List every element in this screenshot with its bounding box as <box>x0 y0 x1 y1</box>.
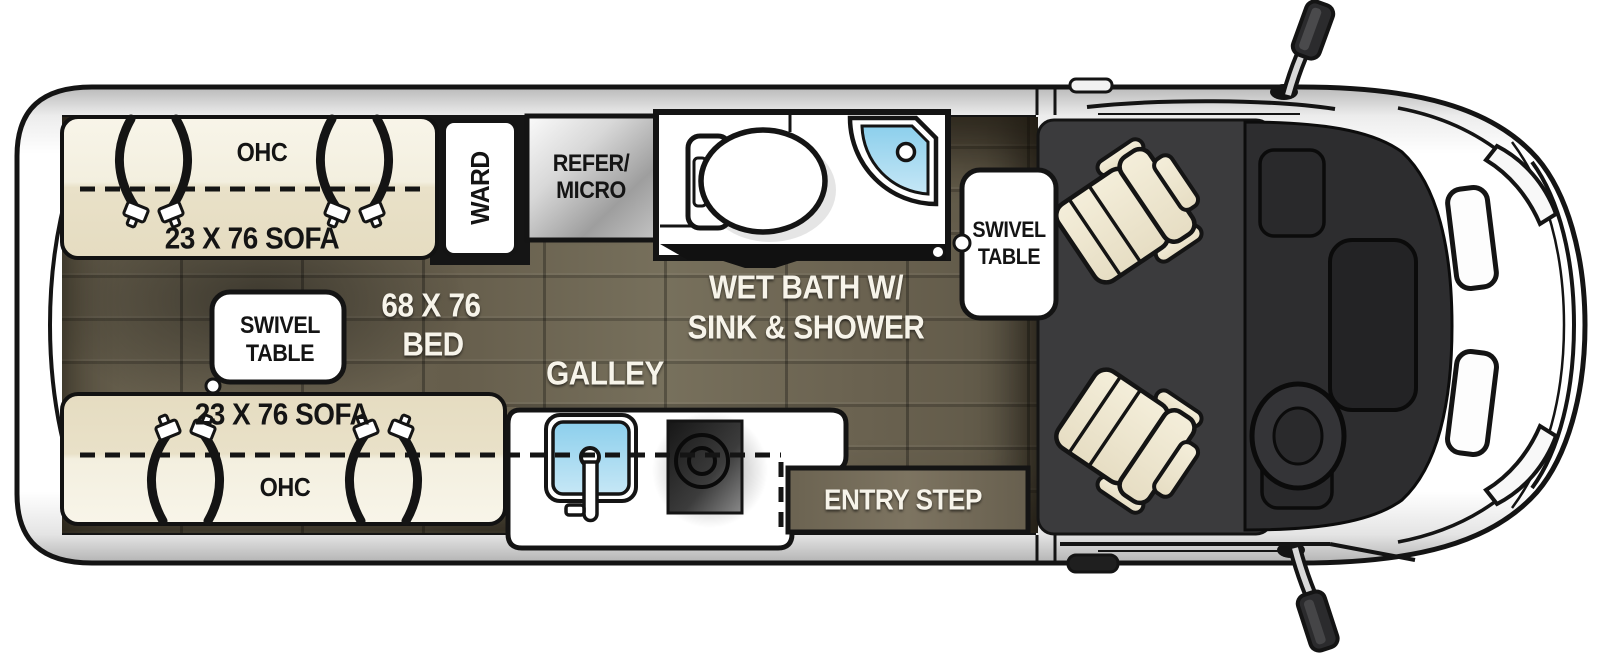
label-wet-bath-line1: WET BATH W/ <box>709 271 903 304</box>
label-bed-line1: 68 X 76 <box>381 289 480 322</box>
label-ohc-bottom: OHC <box>260 474 311 500</box>
label-entry-step: ENTRY STEP <box>824 487 982 516</box>
label-swivel-front-line1: SWIVEL <box>972 219 1045 241</box>
wet-bath <box>656 112 948 268</box>
faucet-stem <box>584 462 597 521</box>
label-refer-line2: MICRO <box>556 179 626 203</box>
steering-wheel-hub <box>1274 408 1322 464</box>
table-pivot-front <box>954 235 970 251</box>
floorplan-canvas: OHC 23 X 76 SOFA WARD REFER/ MICRO WET B… <box>0 0 1600 654</box>
bath-door-hinge <box>932 246 944 258</box>
label-wardrobe: WARD <box>467 151 493 225</box>
label-swivel-front-line2: TABLE <box>978 246 1040 268</box>
toilet-bowl <box>701 130 825 232</box>
label-sofa-bottom: 23 X 76 SOFA <box>195 399 370 430</box>
dash-panel-upper <box>1260 150 1324 236</box>
label-bed-line2: BED <box>402 328 463 361</box>
label-galley: GALLEY <box>546 357 664 390</box>
label-ohc-top: OHC <box>237 139 288 165</box>
cab-area <box>1038 120 1452 534</box>
label-sofa-top: 23 X 76 SOFA <box>165 223 340 254</box>
table-pivot-rear <box>206 379 220 393</box>
bath-bottom-wall <box>660 244 946 268</box>
sink-drain <box>898 144 915 161</box>
label-wet-bath-line2: SINK & SHOWER <box>688 311 925 344</box>
engine-console <box>1330 240 1416 410</box>
label-swivel-rear-line1: SWIVEL <box>240 314 320 338</box>
label-swivel-rear-line2: TABLE <box>246 342 314 366</box>
label-refer-line1: REFER/ <box>553 152 630 176</box>
faucet-foot <box>566 505 584 515</box>
